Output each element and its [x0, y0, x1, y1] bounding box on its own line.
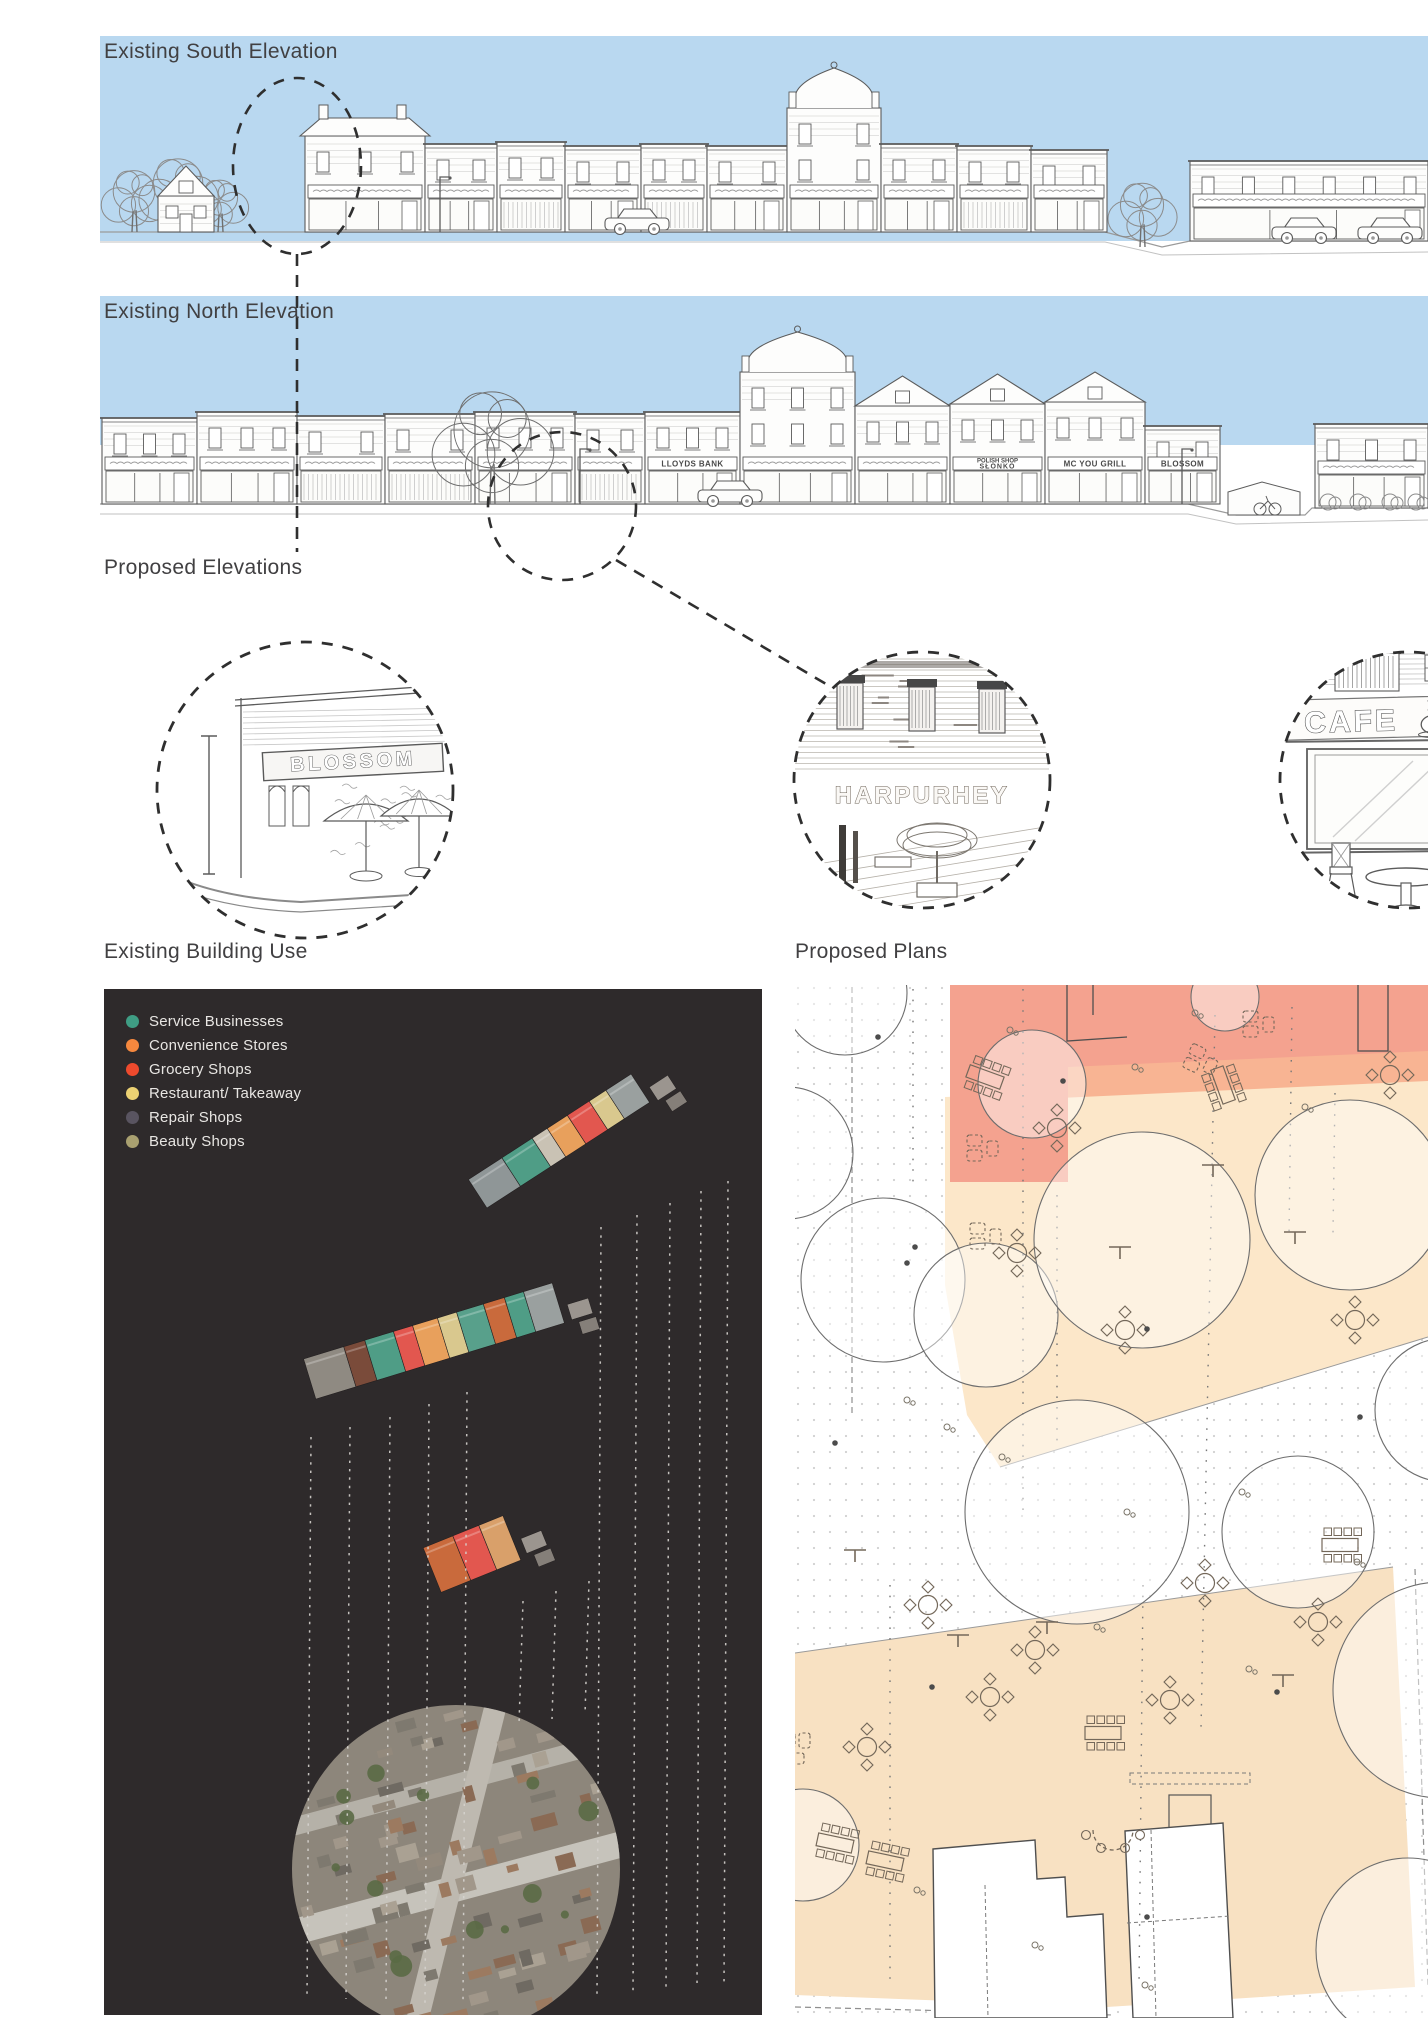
legend-color-dot — [126, 1039, 139, 1052]
legend-item: Restaurant/ Takeaway — [126, 1085, 301, 1102]
south-elevation-title: Existing South Elevation — [104, 40, 338, 64]
building-use-panel: Service BusinessesConvenience StoresGroc… — [104, 989, 762, 2015]
legend-label: Beauty Shops — [149, 1133, 245, 1150]
detail-circle-cafe: CAFE — [1273, 645, 1428, 915]
legend-item: Beauty Shops — [126, 1133, 301, 1150]
svg-text:HARPURHEY: HARPURHEY — [835, 782, 1010, 809]
svg-text:SŁONKO: SŁONKO — [980, 464, 1016, 471]
legend-label: Service Businesses — [149, 1013, 284, 1030]
legend-item: Convenience Stores — [126, 1037, 301, 1054]
legend-item: Service Businesses — [126, 1013, 301, 1030]
building-use-legend: Service BusinessesConvenience StoresGroc… — [126, 1013, 301, 1157]
proposed-plan-drawing — [795, 985, 1428, 2018]
north-elevation-title: Existing North Elevation — [104, 300, 334, 324]
legend-color-dot — [126, 1087, 139, 1100]
legend-label: Grocery Shops — [149, 1061, 252, 1078]
legend-label: Restaurant/ Takeaway — [149, 1085, 301, 1102]
south-elevation-sketch — [100, 36, 1428, 268]
proposed-elevations-title: Proposed Elevations — [104, 556, 302, 580]
legend-item: Grocery Shops — [126, 1061, 301, 1078]
svg-text:CAFE: CAFE — [1304, 704, 1399, 739]
proposed-plans-title: Proposed Plans — [795, 940, 947, 964]
building-use-title: Existing Building Use — [104, 940, 308, 964]
legend-label: Convenience Stores — [149, 1037, 288, 1054]
legend-color-dot — [126, 1135, 139, 1148]
north-elevation-sketch: LLOYDS BANKPOLISH SHOPSŁONKOMC YOU GRILL… — [100, 296, 1428, 596]
legend-color-dot — [126, 1111, 139, 1124]
legend-item: Repair Shops — [126, 1109, 301, 1126]
svg-text:MC YOU GRILL: MC YOU GRILL — [1064, 460, 1127, 469]
detail-circle-harpurhey: HARPURHEY — [787, 645, 1057, 915]
legend-label: Repair Shops — [149, 1109, 242, 1126]
architecture-presentation-board: Existing South Elevation Existing North … — [0, 0, 1428, 2018]
svg-text:LLOYDS BANK: LLOYDS BANK — [661, 460, 723, 469]
detail-circle-blossom: BLOSSOM — [151, 636, 459, 944]
legend-color-dot — [126, 1015, 139, 1028]
legend-color-dot — [126, 1063, 139, 1076]
